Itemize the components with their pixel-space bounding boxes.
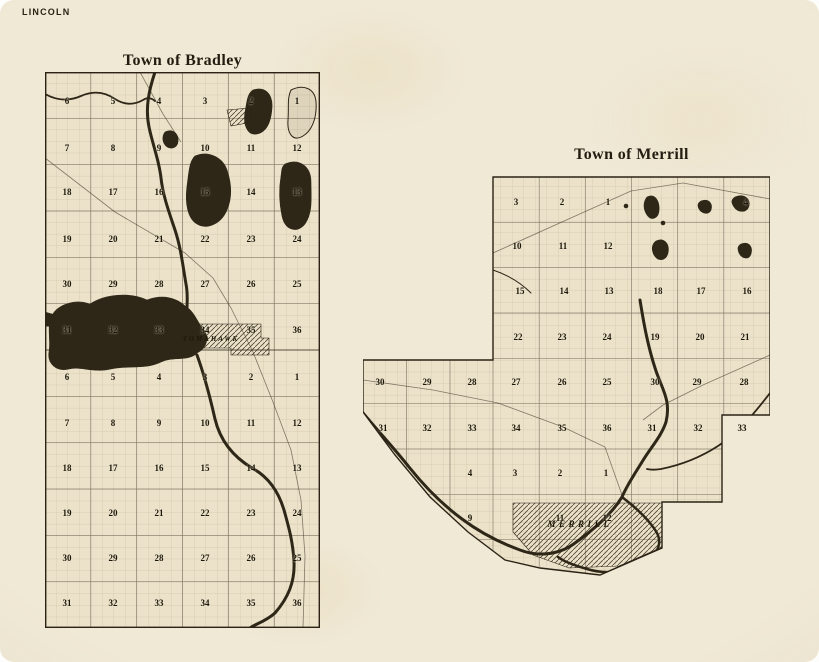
section-number: 36 [293, 598, 302, 608]
section-number: 4 [157, 372, 162, 382]
section-number: 24 [293, 234, 302, 244]
section-number: 34 [201, 325, 210, 335]
section-number: 25 [603, 377, 612, 387]
section-number: 19 [651, 332, 660, 342]
section-number: 28 [468, 377, 477, 387]
section-number: 22 [201, 234, 210, 244]
section-number: 17 [109, 187, 118, 197]
section-number: 17 [697, 286, 706, 296]
bradley-section-numbers: 6543217891011121817161514131920212223243… [45, 72, 320, 628]
section-number: 35 [247, 325, 256, 335]
section-number: 9 [157, 418, 162, 428]
merrill-map-title: Town of Merrill [493, 146, 770, 164]
atlas-page-scan: LINCOLN Town of Bradley Town of Merrill [0, 0, 819, 662]
bradley-map: 6543217891011121817161514131920212223243… [45, 72, 320, 628]
section-number: 24 [293, 508, 302, 518]
section-number: 21 [741, 332, 750, 342]
section-number: 33 [155, 598, 164, 608]
section-number: 35 [558, 423, 567, 433]
section-number: 36 [603, 423, 612, 433]
section-number: 6 [65, 96, 70, 106]
section-number: 3 [203, 96, 208, 106]
section-number: 24 [603, 332, 612, 342]
merrill-city-label: MERRILL [547, 519, 612, 529]
section-number: 13 [293, 187, 302, 197]
section-number: 4 [744, 197, 749, 207]
section-number: 21 [155, 234, 164, 244]
section-number: 34 [201, 598, 210, 608]
section-number: 3 [203, 372, 208, 382]
section-number: 8 [111, 418, 116, 428]
section-number: 31 [63, 598, 72, 608]
section-number: 27 [201, 279, 210, 289]
section-number: 22 [514, 332, 523, 342]
tomahawk-city-label: TOMAHAWK [183, 335, 239, 343]
section-number: 15 [201, 187, 210, 197]
section-number: 29 [109, 553, 118, 563]
section-number: 15 [201, 463, 210, 473]
section-number: 26 [247, 553, 256, 563]
section-number: 1 [606, 197, 611, 207]
section-number: 32 [423, 423, 432, 433]
section-number: 26 [247, 279, 256, 289]
section-number: 30 [651, 377, 660, 387]
section-number: 14 [560, 286, 569, 296]
section-number: 20 [109, 234, 118, 244]
section-number: 28 [740, 377, 749, 387]
section-number: 27 [201, 553, 210, 563]
section-number: 26 [558, 377, 567, 387]
section-number: 19 [63, 234, 72, 244]
section-number: 10 [513, 241, 522, 251]
section-number: 29 [109, 279, 118, 289]
section-number: 4 [468, 468, 473, 478]
county-label: LINCOLN [22, 7, 70, 17]
section-number: 16 [155, 187, 164, 197]
section-number: 25 [293, 553, 302, 563]
section-number: 3 [514, 197, 519, 207]
section-number: 29 [423, 377, 432, 387]
section-number: 30 [63, 279, 72, 289]
section-number: 33 [468, 423, 477, 433]
section-number: 16 [155, 463, 164, 473]
section-number: 8 [111, 143, 116, 153]
section-number: 23 [558, 332, 567, 342]
section-number: 14 [247, 187, 256, 197]
section-number: 18 [654, 286, 663, 296]
section-number: 2 [558, 468, 563, 478]
paper-background: LINCOLN Town of Bradley Town of Merrill [0, 0, 819, 662]
section-number: 13 [605, 286, 614, 296]
bradley-map-title: Town of Bradley [45, 52, 320, 70]
section-number: 12 [604, 241, 613, 251]
section-number: 12 [293, 418, 302, 428]
section-number: 34 [512, 423, 521, 433]
section-number: 36 [293, 325, 302, 335]
section-number: 12 [293, 143, 302, 153]
section-number: 19 [63, 508, 72, 518]
section-number: 32 [694, 423, 703, 433]
section-number: 1 [604, 468, 609, 478]
section-number: 16 [743, 286, 752, 296]
section-number: 10 [201, 143, 210, 153]
section-number: 3 [513, 468, 518, 478]
section-number: 31 [379, 423, 388, 433]
section-number: 33 [738, 423, 747, 433]
section-number: 5 [111, 96, 116, 106]
section-number: 13 [293, 463, 302, 473]
section-number: 31 [63, 325, 72, 335]
section-number: 15 [516, 286, 525, 296]
section-number: 35 [247, 598, 256, 608]
section-number: 17 [109, 463, 118, 473]
section-number: 5 [111, 372, 116, 382]
section-number: 23 [247, 234, 256, 244]
section-number: 18 [63, 463, 72, 473]
section-number: 10 [201, 418, 210, 428]
section-number: 2 [249, 372, 254, 382]
section-number: 25 [293, 279, 302, 289]
merrill-map: 3214101112151413181716222324192021302928… [363, 175, 770, 580]
section-number: 11 [247, 418, 256, 428]
section-number: 29 [693, 377, 702, 387]
section-number: 27 [512, 377, 521, 387]
section-number: 14 [247, 463, 256, 473]
section-number: 20 [109, 508, 118, 518]
section-number: 9 [468, 513, 473, 523]
section-number: 2 [560, 197, 565, 207]
section-number: 32 [109, 325, 118, 335]
section-number: 9 [157, 143, 162, 153]
section-number: 20 [696, 332, 705, 342]
section-number: 2 [249, 96, 254, 106]
section-number: 33 [155, 325, 164, 335]
section-number: 30 [376, 377, 385, 387]
section-number: 7 [65, 418, 70, 428]
section-number: 1 [295, 372, 300, 382]
section-number: 22 [201, 508, 210, 518]
section-number: 31 [648, 423, 657, 433]
section-number: 28 [155, 279, 164, 289]
section-number: 4 [157, 96, 162, 106]
section-number: 28 [155, 553, 164, 563]
section-number: 7 [65, 143, 70, 153]
section-number: 6 [65, 372, 70, 382]
section-number: 11 [247, 143, 256, 153]
section-number: 32 [109, 598, 118, 608]
section-number: 21 [155, 508, 164, 518]
section-number: 23 [247, 508, 256, 518]
section-number: 11 [559, 241, 568, 251]
section-number: 18 [63, 187, 72, 197]
section-number: 30 [63, 553, 72, 563]
section-number: 1 [295, 96, 300, 106]
